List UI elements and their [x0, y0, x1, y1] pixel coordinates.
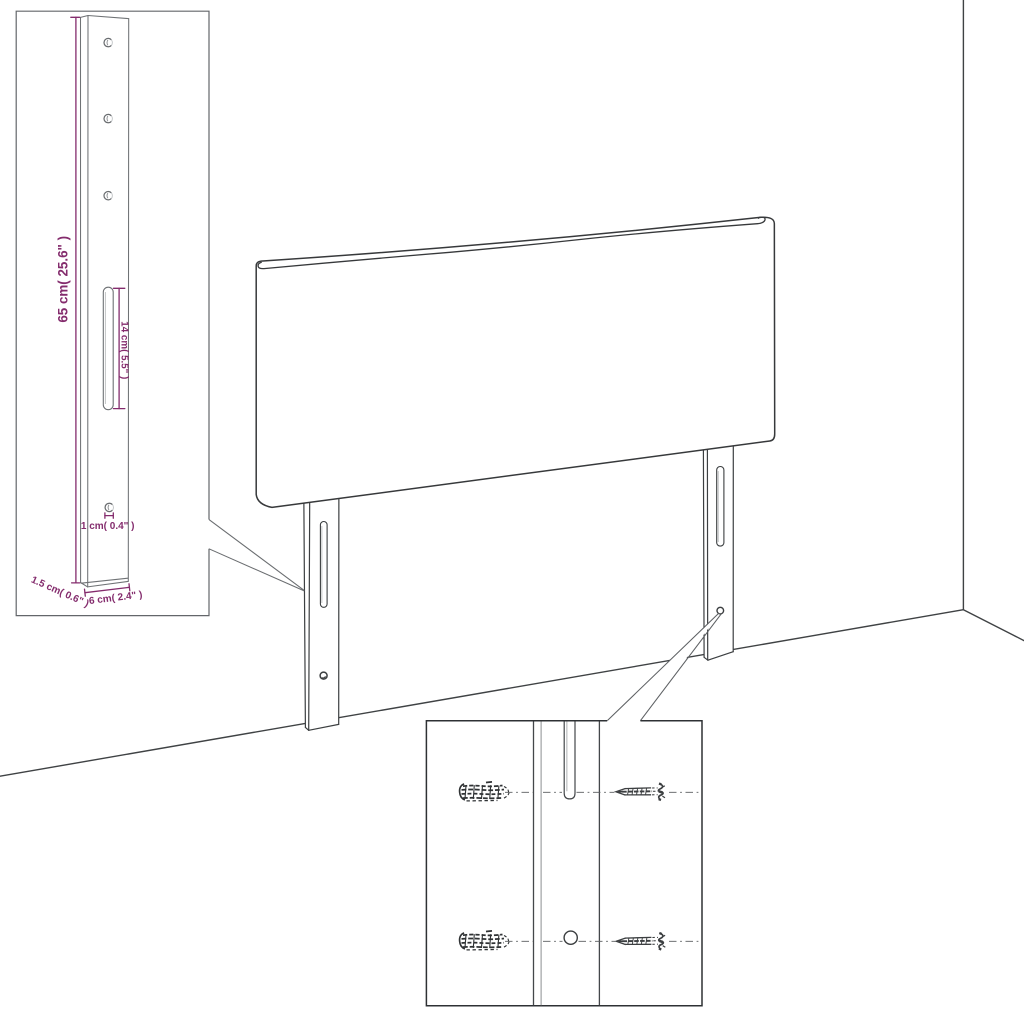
svg-text:14 cm( 5.5" ): 14 cm( 5.5" ): [118, 321, 129, 379]
svg-text:65 cm( 25.6" ): 65 cm( 25.6" ): [55, 236, 70, 323]
svg-text:1 cm( 0.4" ): 1 cm( 0.4" ): [81, 521, 135, 532]
